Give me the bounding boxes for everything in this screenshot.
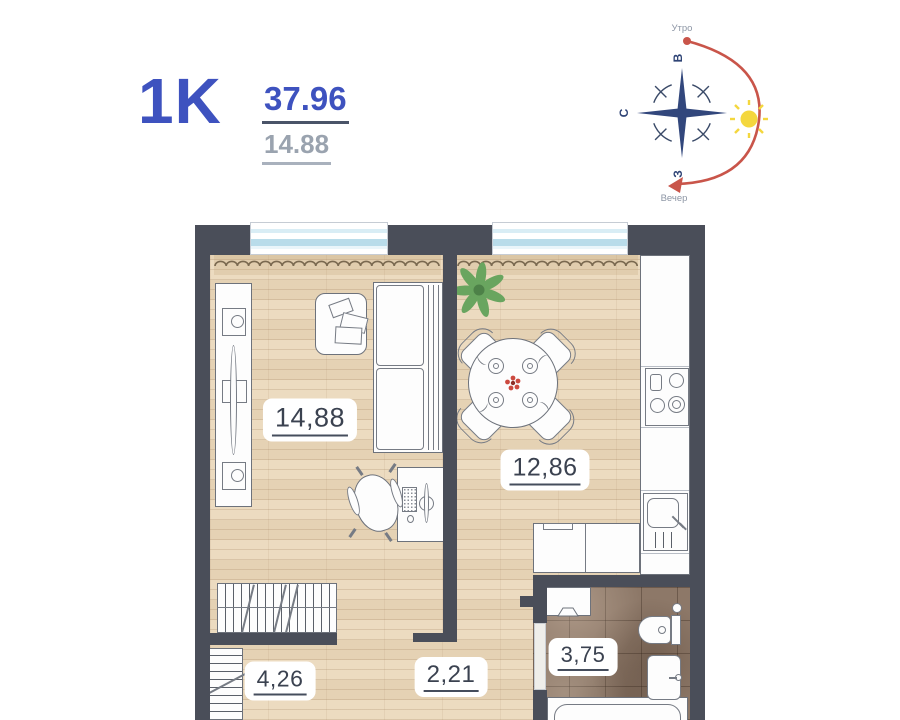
floorplan-page: { "header": { "plan_type": "1K", "total_… bbox=[0, 0, 900, 720]
room-label-living: 14,88 bbox=[263, 399, 357, 442]
wall-divider-foot bbox=[413, 633, 457, 642]
wall-top-pier bbox=[388, 225, 492, 255]
counter-divider bbox=[585, 524, 586, 572]
living-area-value: 14.88 bbox=[262, 129, 331, 165]
tv-icon bbox=[230, 345, 237, 455]
wall-left bbox=[195, 225, 210, 720]
sink-basin bbox=[647, 498, 679, 528]
window-kitchen bbox=[492, 222, 628, 255]
sofa-back-slat bbox=[428, 285, 429, 450]
basin-tap-line bbox=[669, 677, 677, 679]
speaker-cone-icon bbox=[231, 315, 244, 328]
drain-dot bbox=[672, 603, 682, 613]
compass-icon: Утро Вечер В С З bbox=[608, 12, 788, 208]
wardrobe-rail bbox=[217, 607, 337, 608]
wardrobe bbox=[217, 583, 337, 633]
compass-east-label: В bbox=[671, 53, 685, 62]
plant-icon bbox=[453, 262, 505, 318]
counter-seam bbox=[641, 427, 689, 428]
counter-seam bbox=[641, 490, 689, 491]
room-label-bathroom: 3,75 bbox=[549, 638, 618, 676]
toilet-tank bbox=[671, 615, 681, 645]
sunset-arrow bbox=[668, 177, 683, 193]
wall-bathroom-top bbox=[533, 575, 690, 587]
fridge-counter bbox=[533, 523, 640, 573]
sofa-back-slat bbox=[438, 285, 439, 450]
burner bbox=[669, 373, 684, 388]
toilet-icon bbox=[638, 616, 671, 644]
wall-bathroom-left-lower bbox=[533, 690, 547, 720]
wall-living-bottom bbox=[210, 633, 337, 645]
room-label-hallway: 4,26 bbox=[245, 662, 316, 701]
keyboard-icon bbox=[402, 487, 417, 512]
plate-center bbox=[493, 363, 499, 369]
counter-seam bbox=[641, 366, 689, 367]
wall-right bbox=[690, 225, 705, 720]
bathroom-area-figure: 3,75 bbox=[558, 642, 609, 671]
plate-center bbox=[527, 363, 533, 369]
drainboard bbox=[648, 532, 676, 548]
monitor-icon bbox=[424, 483, 429, 523]
wall-divider bbox=[443, 255, 457, 642]
burner bbox=[650, 398, 665, 413]
room-label-corridor: 2,21 bbox=[415, 657, 488, 697]
total-area-value: 37.96 bbox=[262, 80, 349, 124]
sunrise-dot bbox=[683, 37, 691, 45]
floor-plan: 14,88 12,86 3,75 4,26 2,21 bbox=[195, 222, 705, 720]
living-area-figure: 14,88 bbox=[272, 403, 348, 437]
sofa-back-slat bbox=[433, 285, 434, 450]
corridor-area-figure: 2,21 bbox=[424, 661, 479, 692]
kitchen-area-figure: 12,86 bbox=[509, 454, 580, 486]
compass-west-label: З bbox=[671, 170, 685, 178]
bathroom-door-threshold bbox=[534, 623, 546, 690]
burner-ring bbox=[672, 400, 681, 409]
compass-evening-label: Вечер bbox=[661, 193, 688, 204]
plate-center bbox=[527, 397, 533, 403]
mouse-icon bbox=[407, 515, 414, 523]
sofa-cushion bbox=[376, 285, 424, 366]
flowers-icon bbox=[504, 374, 522, 392]
wall-bathroom-left-upper bbox=[533, 587, 547, 623]
plan-type-badge: 1K bbox=[138, 64, 222, 138]
hallway-area-figure: 4,26 bbox=[254, 666, 307, 696]
toilet-flush bbox=[658, 626, 666, 634]
curtain-living bbox=[214, 256, 441, 270]
wall-door-jamb bbox=[520, 596, 533, 607]
counter-seam bbox=[641, 553, 689, 554]
area-summary: 37.96 14.88 bbox=[262, 80, 349, 165]
window-living bbox=[250, 222, 388, 255]
plate-center bbox=[493, 397, 499, 403]
magazine bbox=[335, 326, 363, 344]
room-label-kitchen: 12,86 bbox=[500, 450, 589, 491]
compass-needles bbox=[637, 68, 727, 158]
compass-morning-label: Утро bbox=[672, 23, 693, 34]
speaker-cone-icon bbox=[231, 469, 244, 482]
bathtub-basin bbox=[554, 704, 681, 720]
stove-control bbox=[650, 374, 662, 391]
sofa-cushion bbox=[376, 368, 424, 450]
detergent-tray bbox=[555, 607, 581, 617]
sun-icon bbox=[730, 100, 768, 138]
fridge-handle bbox=[543, 523, 573, 530]
compass-north-label: С bbox=[617, 108, 631, 117]
